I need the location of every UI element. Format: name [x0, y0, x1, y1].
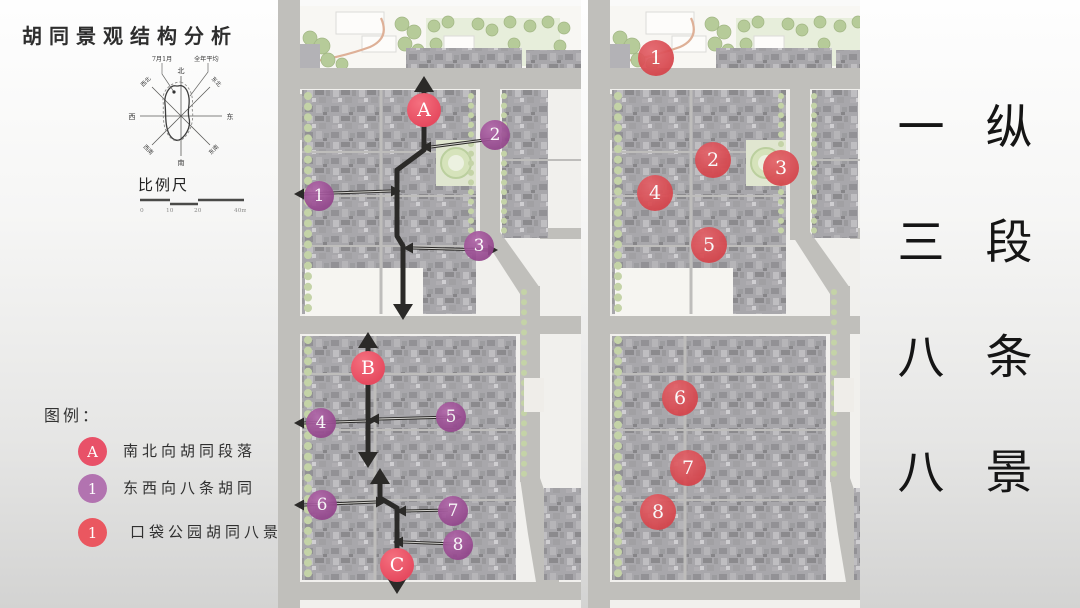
- seg-marker: A: [407, 93, 441, 127]
- legend-item-label: 东西向八条胡同: [123, 478, 289, 500]
- hut-marker: 8: [443, 530, 473, 560]
- wind-rose-diagram: 7月1月 全年平均 北 南 西 东 西北 东北 西南 东南: [124, 52, 242, 172]
- compass-northeast-label: 东北: [210, 75, 224, 89]
- scale-bar: 比例尺 0 10 20 40m: [138, 174, 246, 219]
- legend-item: A南北向胡同段落: [78, 437, 289, 466]
- summary-word-char: 纵: [986, 89, 1033, 158]
- windrose-annotation-july-jan: 7月1月: [152, 56, 172, 63]
- legend-title: 图例：: [44, 402, 101, 426]
- seg-marker: B: [351, 351, 385, 385]
- analysis-slide: 胡同景观结构分析 7月1月 全年平均 北 南 西 东 西北 东北 西南 东: [0, 0, 1080, 608]
- site-plan-basemap: [588, 0, 860, 608]
- hut-marker: 5: [436, 402, 466, 432]
- scene-marker: 5: [691, 227, 727, 263]
- legend-item: 1口袋公园胡同八景: [78, 518, 289, 547]
- hut-marker: 4: [306, 408, 336, 438]
- legend-item-label: 南北向胡同段落: [123, 441, 289, 463]
- scale-bar-label: 比例尺: [138, 174, 246, 195]
- right-map-panel: [588, 0, 860, 608]
- windrose-annotation-annual: 全年平均: [194, 55, 219, 63]
- seg-marker: C: [380, 548, 414, 582]
- scale-tick-40m: 40m: [234, 208, 246, 214]
- summary-word-char: 景: [986, 434, 1033, 503]
- summary-number-char: 一: [898, 89, 945, 158]
- legend-badge: 1: [78, 518, 107, 547]
- scene-marker: 8: [640, 494, 676, 530]
- page-title: 胡同景观结构分析: [22, 20, 238, 49]
- legend-item-label: 口袋公园胡同八景: [123, 522, 289, 544]
- scene-marker: 1: [638, 40, 674, 76]
- legend-badge: A: [78, 437, 107, 466]
- summary-number-char: 三: [898, 204, 945, 273]
- hut-marker: 1: [304, 181, 334, 211]
- scale-tick-20: 20: [194, 208, 202, 214]
- compass-southeast-label: 东南: [207, 143, 221, 157]
- scene-marker: 3: [763, 150, 799, 186]
- legend-item: 1东西向八条胡同: [78, 474, 289, 503]
- compass-west-label: 西: [129, 113, 136, 121]
- compass-northwest-label: 西北: [139, 75, 153, 89]
- scale-tick-10: 10: [166, 208, 174, 214]
- scale-tick-0: 0: [140, 208, 144, 214]
- windrose-pointer-dot: [172, 90, 175, 93]
- compass-north-label: 北: [178, 67, 185, 75]
- hut-marker: 3: [464, 231, 494, 261]
- hut-marker: 7: [438, 496, 468, 526]
- scene-marker: 2: [695, 142, 731, 178]
- compass-southwest-label: 西南: [142, 143, 156, 157]
- scene-marker: 4: [637, 175, 673, 211]
- scene-marker: 7: [670, 450, 706, 486]
- compass-east-label: 东: [227, 112, 234, 121]
- hut-marker: 2: [480, 120, 510, 150]
- summary-word-char: 段: [986, 204, 1033, 273]
- windrose-solid-curve: [165, 86, 190, 141]
- summary-number-char: 八: [898, 434, 945, 503]
- legend-badge: 1: [78, 474, 107, 503]
- hut-marker: 6: [307, 490, 337, 520]
- compass-south-label: 南: [178, 158, 185, 167]
- summary-word-char: 条: [986, 319, 1033, 388]
- scene-marker: 6: [662, 380, 698, 416]
- summary-number-char: 八: [898, 319, 945, 388]
